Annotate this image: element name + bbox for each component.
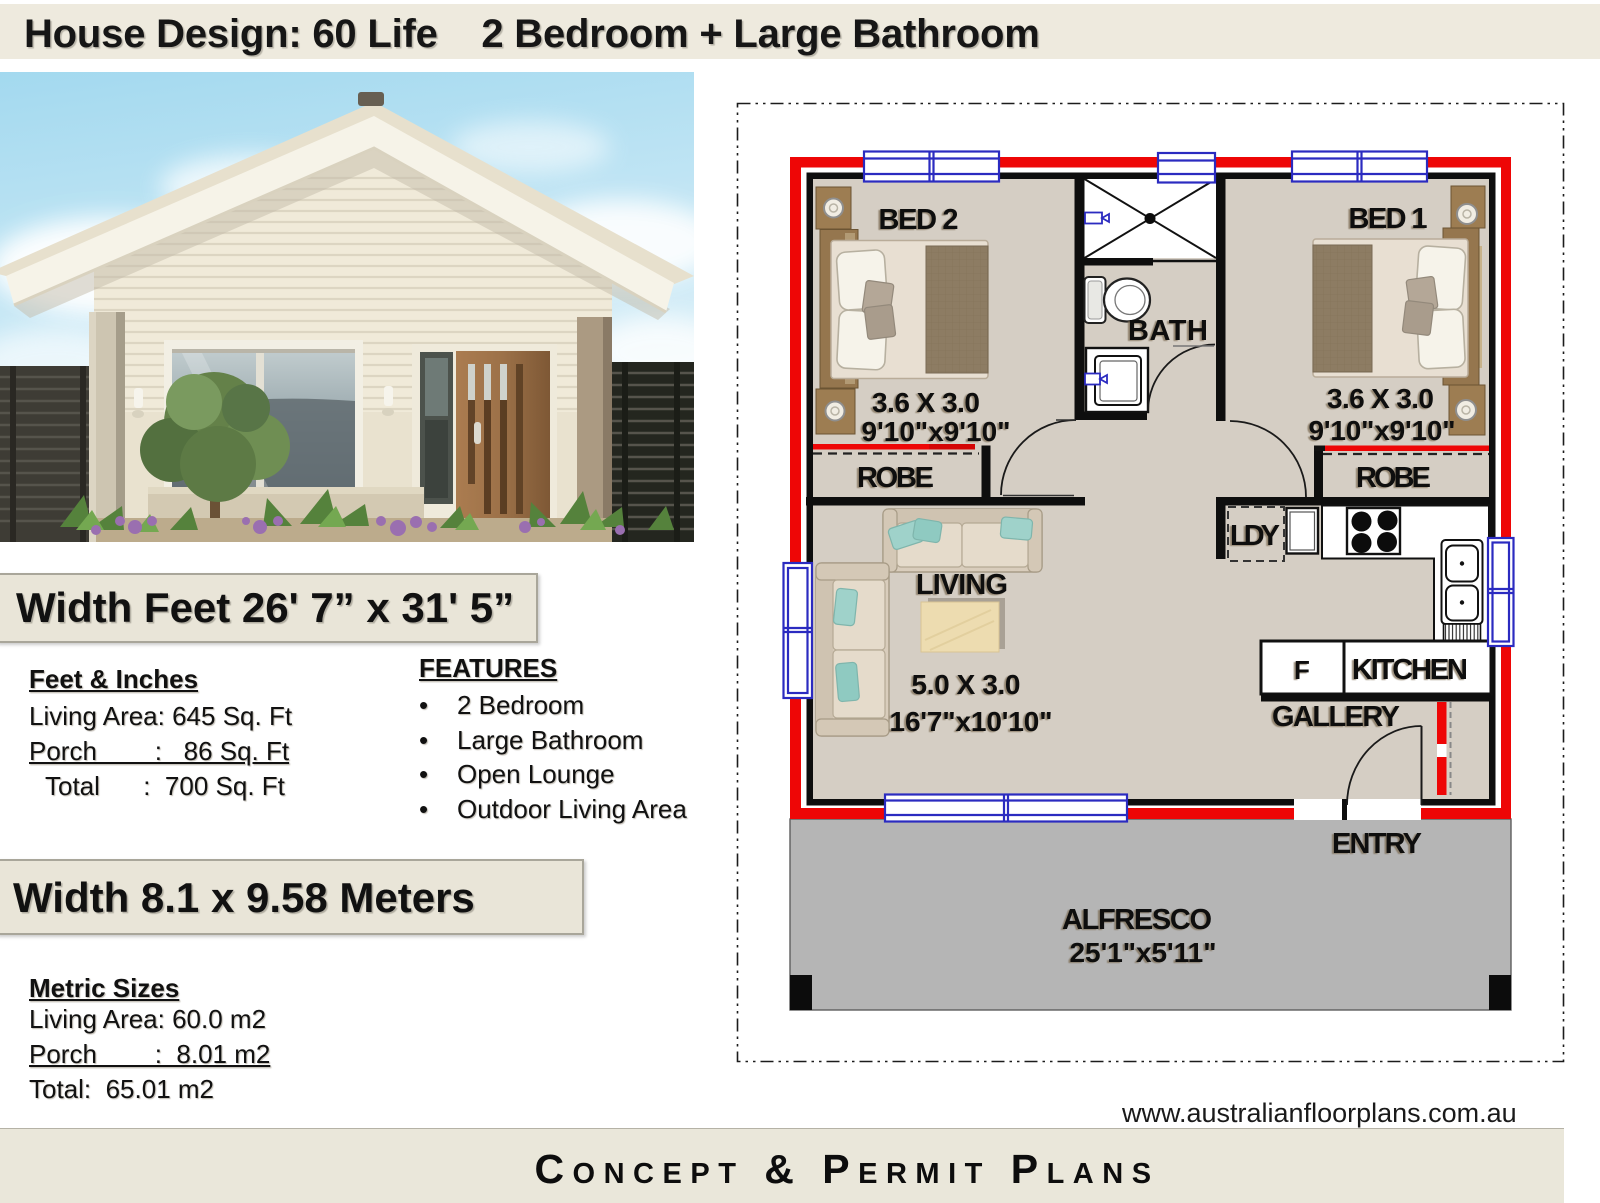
svg-text:3.6 X 3.0: 3.6 X 3.0 xyxy=(1327,383,1434,414)
svg-text:BATH: BATH xyxy=(1128,315,1208,347)
svg-text:BED 1: BED 1 xyxy=(1349,203,1428,235)
svg-text:LDY: LDY xyxy=(1230,520,1280,552)
svg-text:GALLERY: GALLERY xyxy=(1272,701,1400,733)
svg-text:KITCHEN: KITCHEN xyxy=(1352,654,1468,686)
svg-text:3.6 X 3.0: 3.6 X 3.0 xyxy=(872,387,980,418)
svg-text:16'7"x10'10": 16'7"x10'10" xyxy=(890,706,1053,737)
svg-text:LIVING: LIVING xyxy=(916,569,1008,601)
svg-text:25'1"x5'11": 25'1"x5'11" xyxy=(1070,937,1217,968)
svg-text:ENTRY: ENTRY xyxy=(1332,828,1422,860)
svg-text:ALFRESCO: ALFRESCO xyxy=(1062,904,1212,936)
svg-text:ROBE: ROBE xyxy=(857,462,934,494)
svg-text:5.0 X 3.0: 5.0 X 3.0 xyxy=(912,669,1021,700)
svg-text:ROBE: ROBE xyxy=(1356,462,1431,494)
svg-text:9'10"x9'10": 9'10"x9'10" xyxy=(1309,415,1456,446)
svg-text:9'10"x9'10": 9'10"x9'10" xyxy=(862,416,1011,447)
svg-text:BED 2: BED 2 xyxy=(879,204,959,236)
svg-text:F: F xyxy=(1294,655,1310,685)
